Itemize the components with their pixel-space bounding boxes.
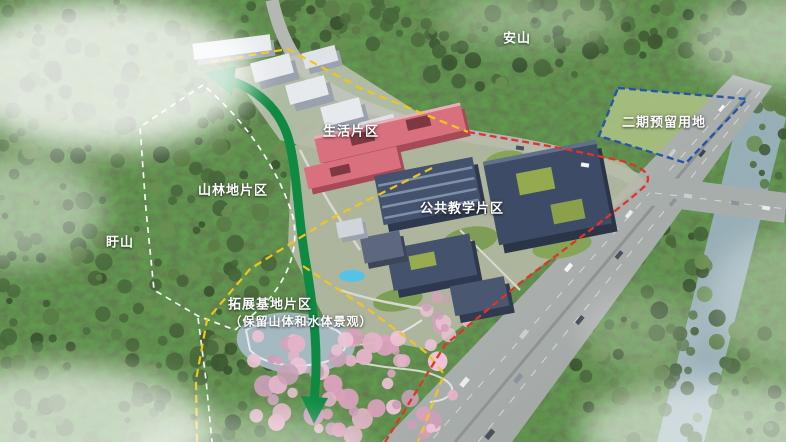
cherry-blob: [390, 331, 406, 347]
cherry-blob: [392, 400, 401, 409]
tree-blob: [228, 268, 241, 281]
cherry-blob: [428, 352, 448, 372]
pool: [339, 270, 365, 282]
tree-blob: [533, 59, 551, 77]
tree-blob: [66, 342, 76, 352]
tree-blob: [49, 334, 57, 342]
tree-blob: [118, 279, 132, 293]
tree-blob: [134, 226, 140, 232]
tree-blob: [228, 124, 235, 131]
tree-blob: [156, 362, 162, 368]
tree-blob: [719, 357, 731, 369]
tree-blob: [582, 42, 599, 59]
tree-blob: [512, 58, 527, 73]
tree-blob: [2, 5, 15, 18]
tree-blob: [439, 31, 449, 41]
tree-blob: [648, 34, 663, 49]
tree-blob: [683, 9, 694, 20]
tree-blob: [432, 44, 446, 58]
tree-blob: [42, 308, 59, 325]
tree-blob: [185, 263, 201, 279]
cherry-blob: [441, 324, 449, 332]
cherry-blob: [426, 424, 435, 433]
cherry-blob: [431, 291, 443, 303]
tree-blob: [666, 27, 678, 39]
tree-blob: [635, 376, 649, 390]
tree-blob: [225, 343, 238, 356]
tree-blob: [760, 179, 770, 189]
tree-blob: [594, 77, 601, 84]
tree-blob: [176, 329, 184, 337]
tree-blob: [126, 338, 140, 352]
tree-blob: [119, 313, 128, 322]
tree-blob: [377, 2, 386, 11]
label-teaching-area: 公共教学片区: [420, 198, 504, 217]
tree-blob: [95, 306, 110, 321]
cherry-blob: [268, 394, 279, 405]
cherry-blob: [331, 344, 342, 355]
tree-blob: [125, 353, 139, 367]
tree-blob: [428, 28, 435, 35]
tree-blob: [246, 1, 256, 11]
label-xushan-mountain: 盱山: [106, 232, 134, 251]
tree-blob: [323, 1, 340, 18]
tree-blob: [441, 55, 457, 71]
tree-blob: [396, 30, 403, 37]
cherry-blob: [447, 390, 458, 401]
tree-blob: [423, 66, 441, 84]
tree-blob: [411, 32, 426, 47]
tree-blob: [306, 5, 315, 14]
tree-blob: [421, 18, 432, 29]
tree-blob: [693, 227, 708, 242]
cherry-blob: [387, 369, 395, 377]
tree-blob: [158, 221, 175, 238]
tree-blob: [241, 15, 249, 23]
tree-blob: [158, 336, 168, 346]
tree-blob: [747, 367, 763, 383]
tree-blob: [98, 179, 105, 186]
cherry-blob: [362, 332, 383, 353]
label-anshan-mountain: 安山: [503, 28, 531, 47]
tree-blob: [153, 146, 170, 163]
tree-blob: [238, 401, 248, 411]
tree-blob: [204, 286, 215, 297]
tree-blob: [259, 276, 270, 287]
cherry-blob: [322, 409, 333, 420]
tree-blob: [119, 363, 127, 371]
tree-blob: [451, 74, 466, 89]
tree-blob: [660, 254, 674, 268]
tree-blob: [252, 204, 270, 222]
tree-blob: [775, 172, 783, 180]
tree-blob: [73, 257, 83, 267]
tree-blob: [154, 259, 162, 267]
tree-blob: [221, 209, 229, 217]
cherry-blob: [422, 302, 432, 312]
tree-blob: [619, 2, 626, 9]
tree-blob: [340, 13, 351, 24]
cherry-blob: [397, 354, 410, 367]
label-living-area: 生活片区: [323, 121, 379, 140]
cherry-blob: [287, 335, 305, 353]
tree-blob: [352, 26, 361, 35]
tree-blob: [84, 163, 99, 178]
tree-blob: [580, 388, 594, 402]
tree-blob: [401, 17, 412, 28]
cherry-blob: [277, 363, 299, 385]
tree-blob: [555, 59, 564, 68]
tree-blob: [0, 328, 17, 345]
tree-blob: [248, 243, 256, 251]
tree-blob: [621, 22, 631, 32]
tree-blob: [459, 43, 467, 51]
tree-blob: [319, 30, 331, 42]
tree-blob: [624, 39, 641, 56]
tree-blob: [208, 239, 220, 251]
tree-blob: [231, 260, 238, 267]
cherry-blob: [444, 296, 451, 303]
cherry-blob: [367, 399, 385, 417]
cherry-blob: [434, 310, 443, 319]
tree-blob: [759, 124, 766, 131]
tree-blob: [694, 254, 709, 269]
tree-blob: [223, 366, 232, 375]
cherry-blob: [287, 388, 297, 398]
tree-blob: [465, 52, 481, 68]
tree-blob: [7, 284, 21, 298]
tree-blob: [43, 300, 51, 308]
tree-blob: [212, 139, 228, 155]
cherry-blob: [382, 378, 393, 389]
tree-blob: [6, 298, 12, 304]
tree-blob: [195, 137, 203, 145]
tree-blob: [163, 303, 178, 318]
tree-blob: [198, 221, 205, 228]
tree-blob: [171, 185, 183, 197]
tree-blob: [83, 327, 91, 335]
tree-blob: [111, 329, 122, 340]
tree-blob: [651, 4, 660, 13]
tree-blob: [168, 196, 177, 205]
tree-blob: [189, 354, 203, 368]
tree-blob: [203, 340, 219, 356]
tree-blob: [671, 223, 680, 232]
tree-blob: [495, 77, 507, 89]
tree-blob: [683, 279, 697, 293]
cherry-blob: [247, 354, 261, 368]
tree-blob: [214, 379, 221, 386]
tree-blob: [684, 367, 692, 375]
tree-blob: [177, 371, 188, 382]
tree-blob: [750, 161, 757, 168]
cherry-blob: [252, 330, 264, 342]
tree-blob: [70, 148, 86, 164]
tree-blob: [475, 81, 486, 92]
tree-blob: [638, 31, 649, 42]
masterplan-scene: [0, 0, 786, 442]
tree-blob: [665, 235, 676, 246]
label-phase2-reserved-land: 二期预留用地: [622, 112, 706, 131]
tree-blob: [759, 170, 765, 176]
tree-blob: [95, 253, 112, 270]
tree-blob: [178, 276, 188, 286]
tree-blob: [639, 51, 646, 58]
tree-blob: [272, 143, 286, 157]
tree-blob: [193, 226, 201, 234]
tree-blob: [187, 195, 195, 203]
aerial-masterplan-rendering: 安山 盱山 二期预留用地 生活片区 山林地片区 公共教学片区 拓展基地片区 （保…: [0, 0, 786, 442]
tree-blob: [166, 353, 184, 371]
tree-blob: [759, 144, 770, 155]
cloud: [580, 290, 700, 370]
tree-blob: [214, 257, 222, 265]
tree-blob: [280, 171, 287, 178]
tree-blob: [669, 363, 682, 376]
tree-blob: [149, 278, 161, 290]
tree-blob: [597, 56, 612, 71]
tree-blob: [133, 303, 144, 314]
tree-blob: [580, 370, 593, 383]
tree-blob: [32, 341, 44, 353]
tree-blob: [211, 281, 217, 287]
tree-blob: [216, 217, 232, 233]
tree-blob: [634, 16, 645, 27]
tree-blob: [137, 247, 148, 258]
tree-blob: [129, 267, 137, 275]
label-forest-area: 山林地片区: [198, 180, 268, 199]
tree-blob: [150, 181, 164, 195]
tree-blob: [110, 153, 125, 168]
tree-blob: [571, 71, 578, 78]
tree-blob: [9, 318, 17, 326]
cherry-blob: [425, 339, 437, 351]
cherry-blob: [407, 419, 417, 429]
label-expansion-area: 拓展基地片区: [228, 294, 312, 313]
label-expansion-note: （保留山体和水体景观）: [229, 313, 372, 330]
tree-blob: [239, 170, 248, 179]
tree-blob: [366, 37, 381, 52]
tree-blob: [173, 149, 191, 167]
tree-blob: [609, 378, 620, 389]
tree-blob: [382, 8, 399, 25]
tree-blob: [227, 235, 244, 252]
cherry-blob: [275, 357, 283, 365]
tree-blob: [451, 43, 460, 52]
tree-blob: [189, 162, 203, 176]
tree-blob: [96, 274, 103, 281]
